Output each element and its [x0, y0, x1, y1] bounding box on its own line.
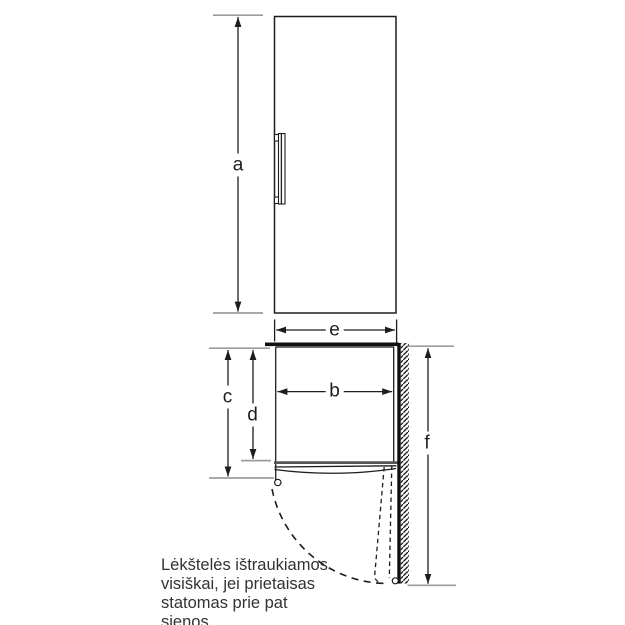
- note-line-3: statomas prie pat: [161, 594, 328, 613]
- diagram-canvas: [0, 0, 625, 625]
- door-handle-knob: [275, 479, 281, 485]
- door-open-dashed-right: [389, 466, 392, 579]
- dim-f-label: f: [420, 432, 433, 455]
- door-front-inner-line: [275, 466, 397, 467]
- note-line-1: Lėkštelės ištraukiamos: [161, 556, 328, 575]
- dimension-diagram: a e b c d f Lėkštelės ištraukiamos visiš…: [0, 0, 625, 625]
- dim-b-label: b: [325, 379, 344, 402]
- wall-line: [397, 343, 400, 584]
- note-text: Lėkštelės ištraukiamos visiškai, jei pri…: [161, 556, 328, 625]
- door-open-handle-knob: [392, 578, 398, 584]
- dim-d-label: d: [243, 404, 262, 427]
- wall-hatch: [401, 343, 409, 584]
- dim-c-label: c: [219, 385, 237, 408]
- door-front-curve: [275, 469, 397, 474]
- dim-a-label: a: [229, 153, 248, 176]
- door-open-dashed-left: [375, 467, 385, 583]
- dim-e-label: e: [325, 318, 344, 341]
- note-line-2: visiškai, jei prietaisas: [161, 575, 328, 594]
- note-line-4: sienos.: [161, 613, 328, 625]
- front-view-outline: [275, 17, 397, 314]
